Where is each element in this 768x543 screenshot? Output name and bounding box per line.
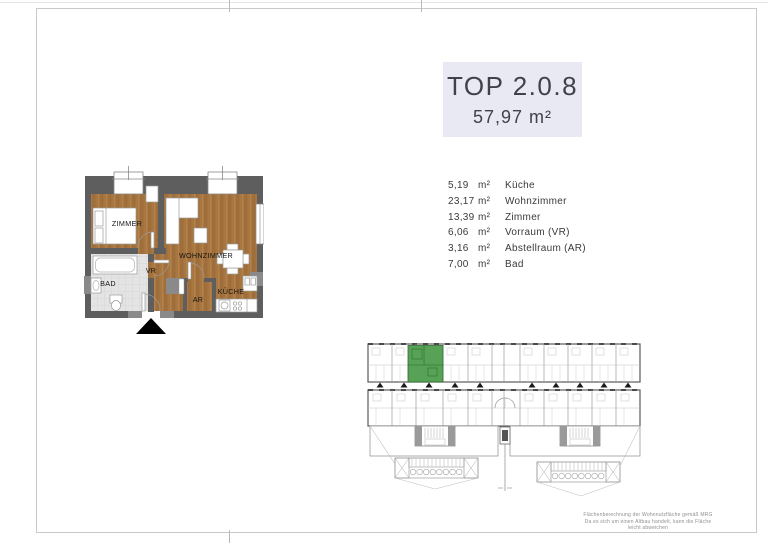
room-name: Zimmer <box>505 212 541 223</box>
room-area-unit: m² <box>478 259 505 270</box>
window-icon <box>112 166 145 194</box>
disclaimer-line2: Da es sich um einen Altbau handelt, kann… <box>578 519 718 532</box>
room-name: Wohnzimmer <box>505 196 567 207</box>
room-label-kueche: KÜCHE <box>218 287 245 296</box>
room-area-value: 6,06 <box>448 227 478 238</box>
room-row: 6,06 m² Vorraum (VR) <box>448 225 586 241</box>
room-area-value: 13,39 <box>448 212 478 223</box>
wardrobe <box>146 186 158 202</box>
room-label-zimmer: ZIMMER <box>112 219 142 228</box>
room-area-unit: m² <box>478 212 505 223</box>
floorplan-sheet: TOP 2.0.8 57,97 m² 5,19 m² Küche 23,17 m… <box>0 0 768 543</box>
building-site-plan <box>358 338 645 505</box>
room-label-bad: BAD <box>100 279 116 288</box>
window-icon <box>206 166 239 194</box>
room-label-vorraum: VR <box>146 266 157 275</box>
apartment-id: TOP 2.0.8 <box>443 71 582 102</box>
terrace-left <box>395 458 478 478</box>
room-name: Küche <box>505 180 535 191</box>
room-area-value: 3,16 <box>448 243 478 254</box>
room-row: 5,19 m² Küche <box>448 178 586 194</box>
unit-entrance-mark <box>529 383 536 388</box>
room-area-unit: m² <box>478 196 505 207</box>
bathtub <box>93 256 137 274</box>
room-area-unit: m² <box>478 180 505 191</box>
fold-mark <box>421 0 422 12</box>
title-box: TOP 2.0.8 57,97 m² <box>443 62 582 137</box>
room-row: 13,39 m² Zimmer <box>448 209 586 225</box>
shaft-door <box>179 279 184 294</box>
disclaimer-line1: Flächenberechnung der Wohnnutzfläche gem… <box>578 512 718 519</box>
highlighted-unit <box>408 346 443 383</box>
unit-entrance-mark <box>452 383 459 388</box>
room-name: Vorraum (VR) <box>505 227 570 238</box>
room-area-unit: m² <box>478 243 505 254</box>
room-label-abstellraum: AR <box>193 295 204 304</box>
room-name: Bad <box>505 259 524 270</box>
room-row: 23,17 m² Wohnzimmer <box>448 194 586 210</box>
unit-entrance-mark <box>553 383 560 388</box>
apartment-floor-plan: ZIMMER WOHNZIMMER VR BAD AR KÜCHE <box>84 166 264 338</box>
room-area-unit: m² <box>478 227 505 238</box>
page-edge-line <box>0 2 768 3</box>
apartment-total-area: 57,97 m² <box>443 107 582 128</box>
room-label-wohnzimmer: WOHNZIMMER <box>179 251 233 260</box>
unit-entrance-mark <box>426 383 433 388</box>
fold-mark <box>229 530 230 543</box>
disclaimer: Flächenberechnung der Wohnnutzfläche gem… <box>578 512 718 532</box>
room-row: 7,00 m² Bad <box>448 256 586 272</box>
room-name: Abstellraum (AR) <box>505 243 586 254</box>
kitchen-sink <box>243 276 257 291</box>
room-area-list: 5,19 m² Küche 23,17 m² Wohnzimmer 13,39 … <box>448 178 586 272</box>
fold-mark <box>229 0 230 12</box>
terrace-right <box>537 462 620 482</box>
room-row: 3,16 m² Abstellraum (AR) <box>448 241 586 257</box>
toilet <box>110 295 122 311</box>
unit-entrance-mark <box>401 383 408 388</box>
unit-entrance-mark <box>477 383 484 388</box>
entrance-triangle-icon <box>136 318 166 334</box>
unit-entrance-mark <box>625 383 632 388</box>
kitchen-counter <box>216 299 257 312</box>
unit-entrance-mark <box>377 383 384 388</box>
room-area-value: 5,19 <box>448 180 478 191</box>
unit-entrance-mark <box>601 383 608 388</box>
room-area-value: 7,00 <box>448 259 478 270</box>
window-icon <box>256 204 264 244</box>
room-area-value: 23,17 <box>448 196 478 207</box>
unit-entrance-mark <box>577 383 584 388</box>
